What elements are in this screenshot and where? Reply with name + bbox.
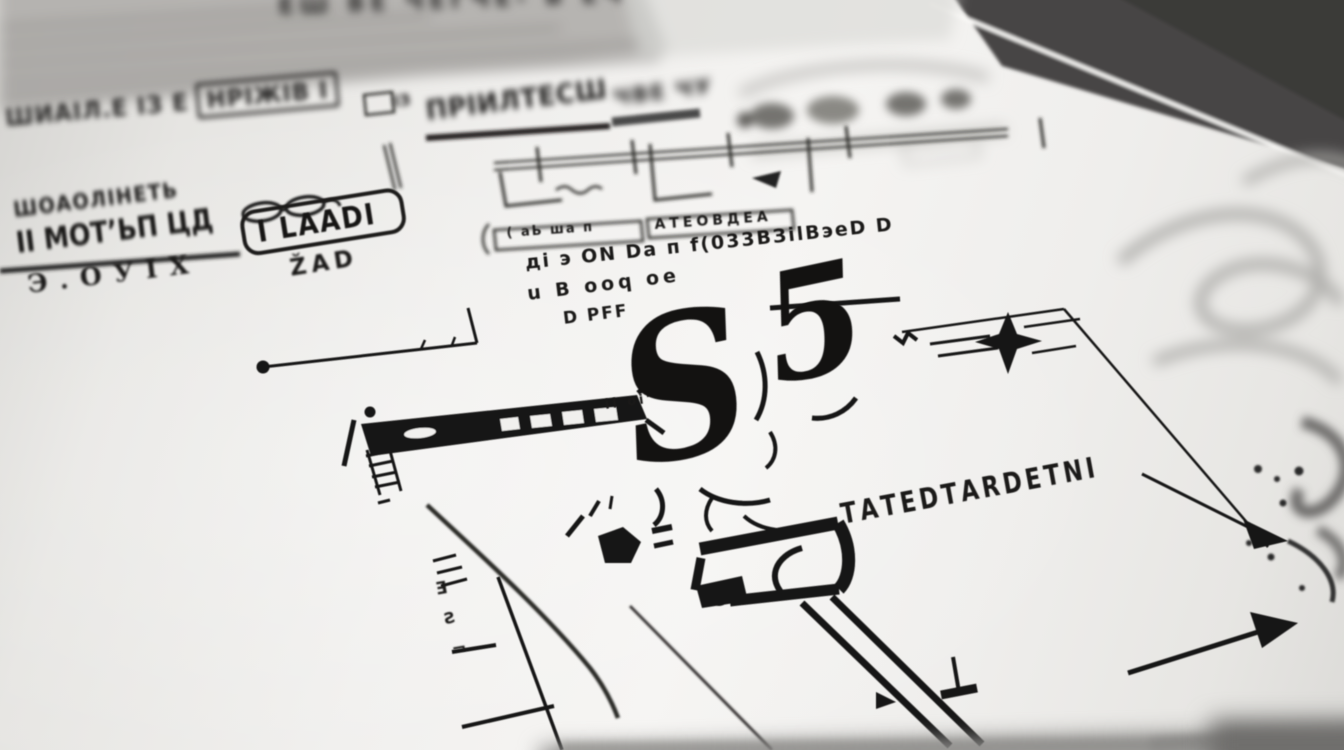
corner-shadow bbox=[1210, 720, 1344, 750]
pentagon-doodle bbox=[598, 527, 641, 563]
stem-line bbox=[802, 603, 950, 746]
header-prefix: ІЗ bbox=[392, 90, 412, 111]
big-box-edge bbox=[902, 309, 1064, 332]
table-surface bbox=[928, 0, 1344, 185]
header-underline bbox=[426, 126, 610, 138]
flow-rail bbox=[494, 129, 1008, 163]
small-arrowhead-icon bbox=[752, 171, 781, 188]
blurred-word-blob bbox=[750, 103, 794, 129]
dark-swirl bbox=[1296, 422, 1344, 512]
photo-of-wireframe-sketch: ЕШ ВЕ ЧЕГЧЕ- В ЕЧ ШИАІЛ.Е ІЗ ЕНРІЖІВ І Ш… bbox=[0, 0, 1344, 750]
arrow-up-right-icon bbox=[1128, 632, 1258, 673]
arrow-right-icon bbox=[1142, 474, 1250, 528]
leader-line bbox=[263, 343, 477, 367]
